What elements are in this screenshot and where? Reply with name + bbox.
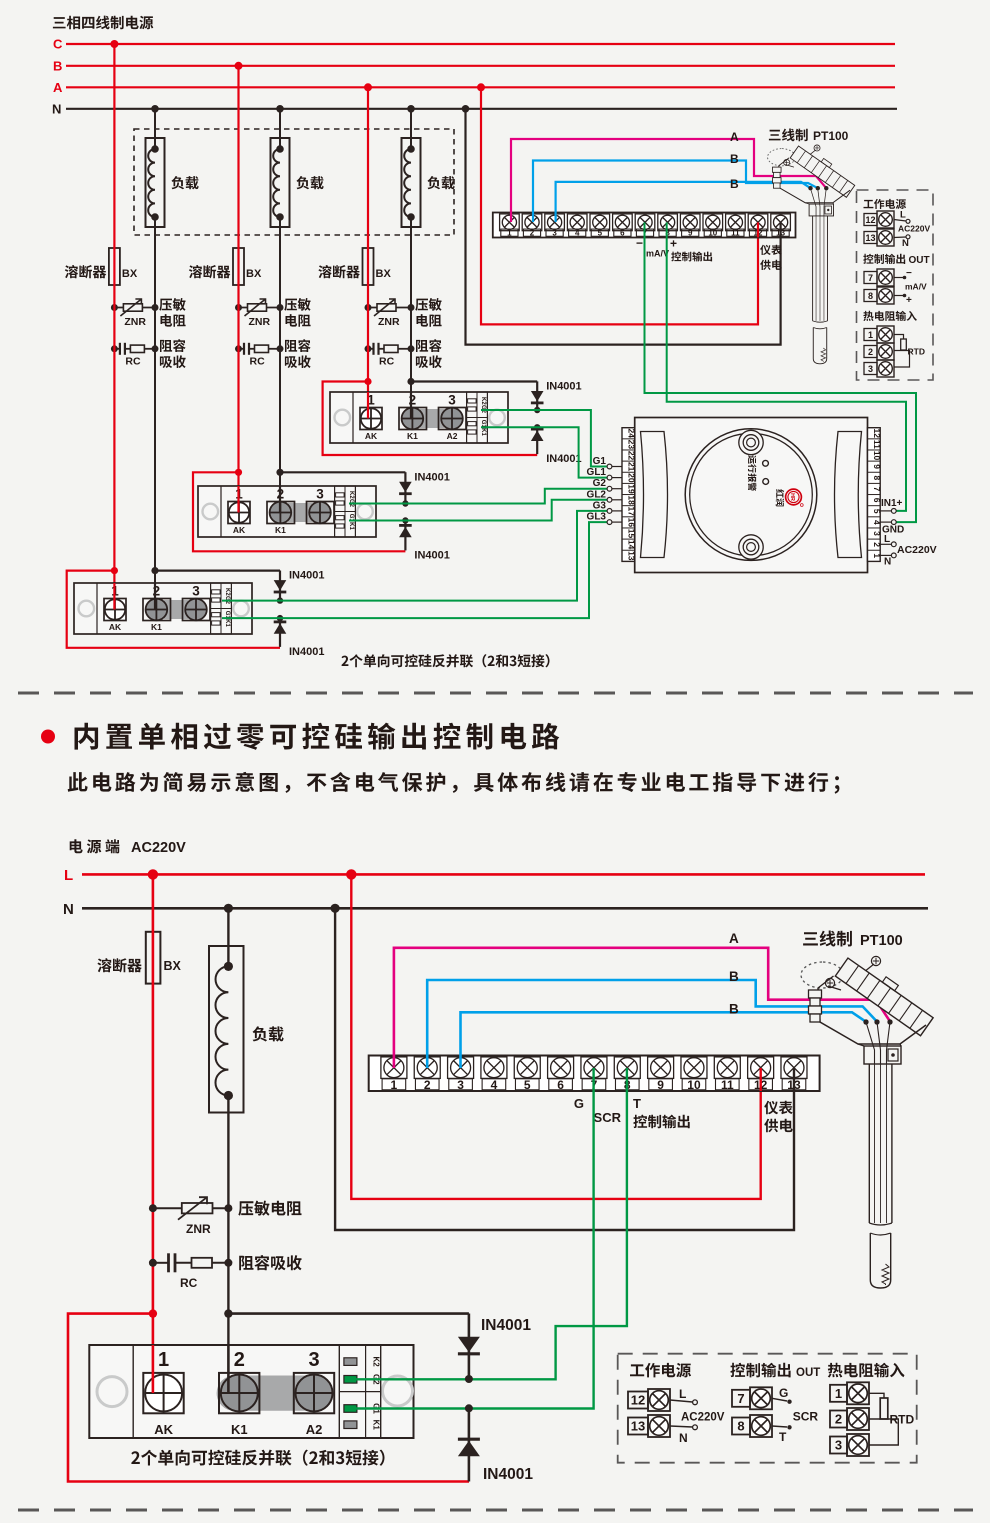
svg-text:+: + (670, 237, 677, 251)
svg-text:L: L (679, 1387, 686, 1401)
svg-text:K1: K1 (275, 525, 286, 535)
svg-text:RC: RC (250, 355, 266, 367)
svg-text:23: 23 (626, 440, 636, 450)
svg-text:7: 7 (737, 1391, 744, 1406)
svg-text:OUT: OUT (796, 1367, 820, 1379)
svg-text:IN4001: IN4001 (483, 1466, 533, 1483)
svg-text:+: + (906, 295, 912, 306)
svg-text:8: 8 (868, 291, 873, 301)
svg-text:−: − (636, 236, 643, 250)
svg-text:ZNR: ZNR (124, 316, 146, 328)
svg-text:ZNR: ZNR (378, 316, 400, 328)
svg-text:OUT: OUT (909, 255, 930, 266)
svg-text:7: 7 (872, 487, 882, 492)
svg-text:12: 12 (631, 1393, 645, 1408)
svg-text:3: 3 (835, 1438, 842, 1453)
svg-text:2: 2 (835, 1412, 842, 1427)
svg-text:PT100: PT100 (860, 933, 903, 949)
svg-text:IN4001: IN4001 (414, 549, 449, 561)
svg-text:N: N (52, 101, 61, 116)
svg-text:3: 3 (457, 1078, 464, 1092)
svg-text:G3: G3 (593, 500, 607, 511)
svg-text:4: 4 (491, 1078, 498, 1092)
svg-text:RTD: RTD (890, 1413, 915, 1427)
svg-text:7: 7 (868, 273, 873, 283)
svg-text:2: 2 (153, 584, 161, 599)
svg-text:1: 1 (507, 229, 512, 238)
svg-text:N: N (884, 557, 891, 568)
svg-text:6: 6 (557, 1078, 564, 1092)
svg-text:IN4001: IN4001 (481, 1317, 531, 1334)
svg-text:16: 16 (626, 518, 636, 528)
svg-text:N: N (679, 1431, 688, 1445)
svg-text:AC220V: AC220V (681, 1412, 725, 1424)
svg-text:C: C (53, 37, 63, 52)
svg-text:K1: K1 (151, 622, 162, 632)
svg-text:5: 5 (598, 229, 603, 238)
svg-text:9: 9 (657, 1078, 664, 1092)
svg-text:10: 10 (708, 229, 717, 238)
svg-text:1: 1 (868, 330, 873, 340)
svg-text:GL2: GL2 (587, 489, 607, 500)
svg-text:K1: K1 (231, 1422, 248, 1437)
svg-text:10: 10 (687, 1078, 701, 1092)
svg-text:T: T (779, 1430, 787, 1444)
svg-text:A: A (729, 931, 739, 946)
svg-text:IN4001: IN4001 (289, 646, 324, 658)
svg-text:1: 1 (835, 1386, 842, 1401)
svg-text:3: 3 (552, 229, 557, 238)
svg-text:AK: AK (233, 525, 246, 535)
svg-text:RC: RC (180, 1276, 198, 1290)
svg-text:T: T (633, 1096, 641, 1111)
svg-text:A2: A2 (306, 1422, 323, 1437)
svg-text:8: 8 (872, 475, 882, 480)
svg-text:AK: AK (365, 431, 378, 441)
svg-text:21: 21 (626, 462, 636, 472)
svg-text:ZNR: ZNR (186, 1222, 211, 1236)
svg-text:L: L (900, 210, 906, 221)
svg-text:mA/V: mA/V (905, 282, 927, 292)
svg-text:RTD: RTD (908, 347, 925, 357)
svg-text:B: B (730, 177, 739, 191)
svg-text:3: 3 (316, 487, 324, 502)
svg-text:A: A (53, 80, 63, 95)
svg-text:14: 14 (626, 540, 636, 550)
svg-text:G: G (574, 1096, 584, 1111)
svg-text:GL1: GL1 (587, 467, 607, 478)
svg-text:11: 11 (721, 1078, 734, 1092)
svg-text:13: 13 (626, 551, 636, 561)
svg-text:G1: G1 (593, 456, 607, 467)
svg-text:HR: HR (789, 493, 795, 501)
svg-text:17: 17 (626, 507, 636, 517)
svg-text:20: 20 (626, 473, 636, 483)
svg-text:mA/V: mA/V (646, 249, 669, 259)
svg-text:3: 3 (872, 531, 882, 536)
svg-text:G: G (779, 1386, 788, 1400)
svg-text:2: 2 (530, 229, 535, 238)
svg-text:L: L (884, 534, 890, 545)
svg-text:IN4001: IN4001 (546, 381, 581, 393)
svg-text:L: L (64, 867, 73, 884)
svg-text:18: 18 (626, 495, 636, 505)
svg-text:9: 9 (688, 229, 693, 238)
svg-text:1: 1 (158, 1349, 169, 1371)
svg-text:BX: BX (376, 268, 392, 280)
svg-text:3: 3 (868, 364, 873, 374)
svg-text:IN4001: IN4001 (414, 471, 449, 483)
svg-text:6: 6 (620, 229, 625, 238)
svg-text:K1: K1 (224, 619, 230, 627)
svg-text:10: 10 (872, 451, 882, 461)
svg-text:8: 8 (737, 1419, 744, 1434)
svg-text:9: 9 (872, 464, 882, 469)
svg-text:GL3: GL3 (587, 512, 607, 523)
svg-text:SCR: SCR (594, 1110, 622, 1125)
svg-text:RC: RC (125, 355, 141, 367)
svg-text:AC220V: AC220V (131, 840, 186, 856)
svg-text:2: 2 (234, 1349, 245, 1371)
svg-text:K2: K2 (371, 1356, 380, 1367)
svg-text:15: 15 (626, 529, 636, 539)
svg-text:A: A (730, 130, 739, 144)
svg-text:−: − (906, 268, 912, 279)
svg-text:G2: G2 (593, 478, 607, 489)
svg-text:K1: K1 (407, 431, 418, 441)
svg-text:19: 19 (626, 484, 636, 494)
svg-text:2: 2 (409, 393, 417, 408)
svg-text:K1: K1 (480, 428, 486, 436)
svg-text:PT100: PT100 (813, 129, 849, 143)
svg-text:SCR: SCR (793, 1410, 819, 1424)
svg-text:K1: K1 (348, 522, 354, 530)
svg-text:A2: A2 (447, 431, 458, 441)
svg-text:13: 13 (631, 1419, 645, 1434)
svg-text:12: 12 (872, 429, 882, 439)
svg-text:B: B (53, 58, 62, 73)
svg-text:24: 24 (626, 429, 636, 439)
svg-text:3: 3 (448, 393, 456, 408)
svg-text:3: 3 (192, 584, 200, 599)
svg-text:N: N (902, 238, 909, 249)
svg-text:BX: BX (164, 959, 182, 973)
svg-text:2: 2 (868, 347, 873, 357)
svg-text:IN4001: IN4001 (289, 570, 324, 582)
svg-text:11: 11 (872, 440, 882, 449)
svg-text:AC220V: AC220V (898, 224, 930, 234)
svg-text:B: B (730, 152, 739, 166)
svg-text:B: B (729, 1002, 739, 1017)
svg-text:4: 4 (575, 229, 580, 238)
svg-text:IN1+: IN1+ (881, 498, 903, 509)
svg-text:AK: AK (154, 1422, 173, 1437)
svg-text:22: 22 (626, 451, 636, 461)
svg-text:N: N (63, 901, 74, 918)
svg-text:K1: K1 (371, 1420, 380, 1431)
svg-text:BX: BX (246, 268, 262, 280)
svg-text:AK: AK (109, 622, 122, 632)
svg-text:B: B (729, 969, 739, 984)
svg-text:IN4001: IN4001 (546, 453, 581, 465)
svg-text:5: 5 (524, 1078, 531, 1092)
svg-text:RC: RC (379, 355, 395, 367)
svg-text:1: 1 (391, 1078, 398, 1092)
svg-text:ZNR: ZNR (249, 316, 271, 328)
svg-text:BX: BX (122, 268, 138, 280)
svg-text:AC220V: AC220V (897, 544, 937, 556)
svg-text:12: 12 (865, 215, 875, 225)
svg-text:13: 13 (865, 233, 875, 243)
svg-text:11: 11 (731, 229, 740, 238)
svg-text:3: 3 (308, 1349, 319, 1371)
svg-text:2: 2 (424, 1078, 431, 1092)
